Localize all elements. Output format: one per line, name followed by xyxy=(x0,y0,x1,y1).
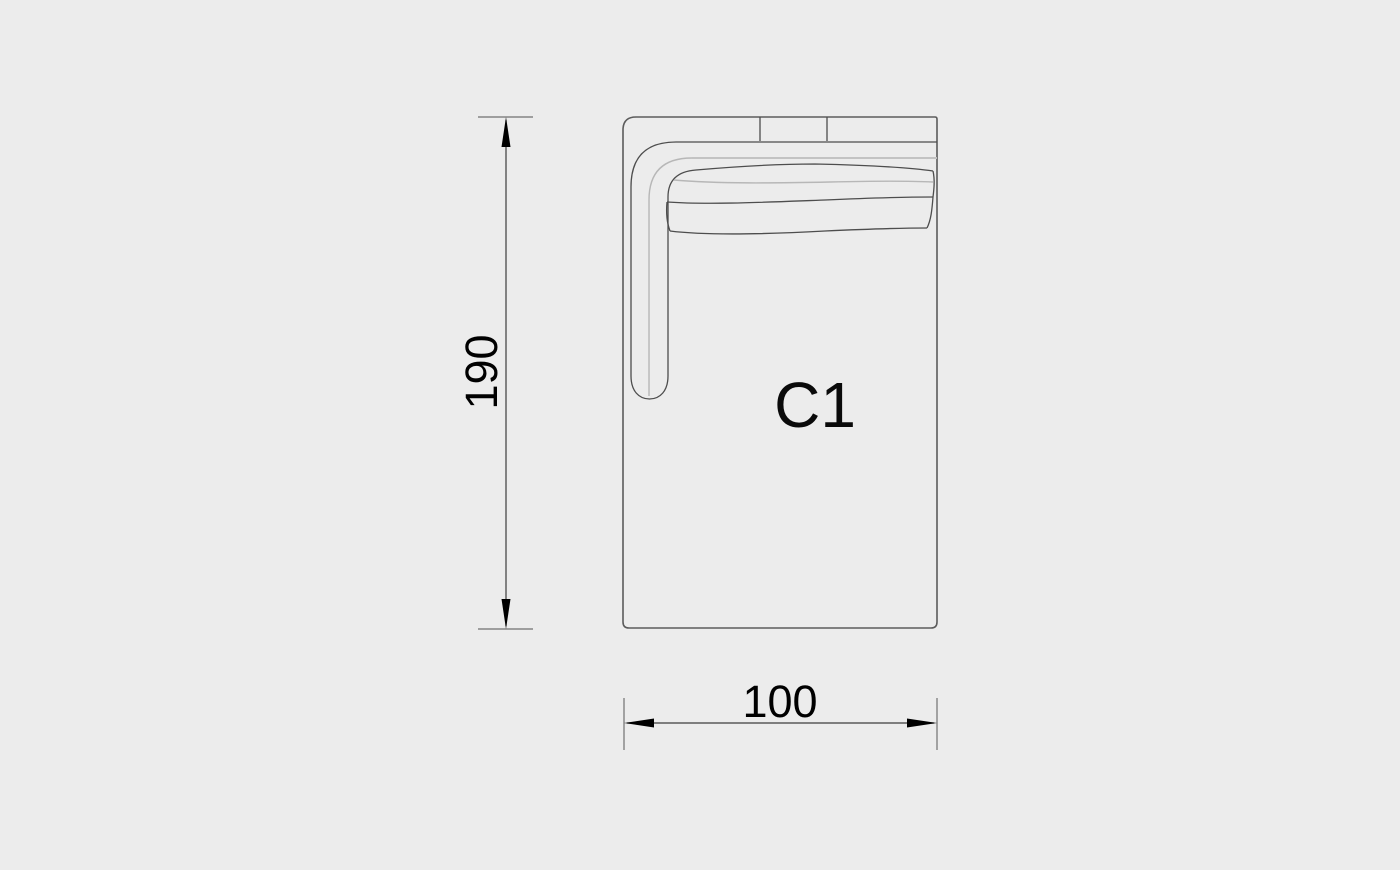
seat-cushion-mid-line xyxy=(667,197,933,203)
height-dim-label: 190 xyxy=(456,334,507,409)
armrest-crease-line xyxy=(649,158,692,396)
module-label: C1 xyxy=(774,369,856,441)
width-dim-arrow-right xyxy=(907,719,937,728)
sofa-module-drawing: C1 xyxy=(623,117,937,628)
drawing-canvas: C1 190 100 xyxy=(0,0,1400,870)
seat-cushion-front-line xyxy=(670,228,927,234)
height-dimension: 190 xyxy=(456,117,533,629)
seat-cushion-right-edge xyxy=(927,171,934,228)
seat-cushion-seam-line xyxy=(674,180,933,183)
width-dim-label: 100 xyxy=(742,676,817,727)
width-dimension: 100 xyxy=(624,676,937,750)
width-dim-arrow-left xyxy=(624,719,654,728)
height-dim-arrow-top xyxy=(502,117,511,147)
height-dim-arrow-bottom xyxy=(502,599,511,629)
furniture-technical-drawing: C1 190 100 xyxy=(0,0,1400,870)
